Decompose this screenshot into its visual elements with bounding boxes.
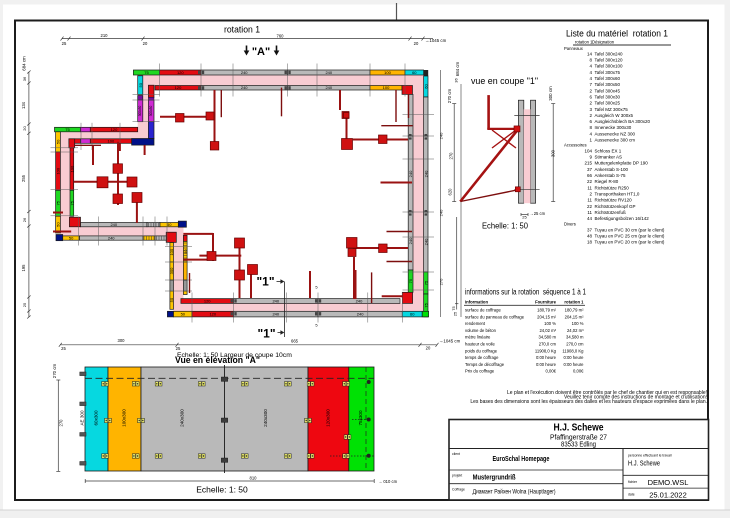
svg-text:270,0 cm: 270,0 cm — [566, 342, 584, 347]
svg-text:300 cm: 300 cm — [548, 86, 553, 101]
svg-text:300x30: 300x30 — [138, 106, 142, 117]
svg-text:180,79 m²: 180,79 m² — [537, 308, 556, 313]
svg-text:rotation 1: rotation 1 — [575, 40, 593, 45]
svg-text:50: 50 — [56, 222, 61, 227]
svg-text:270: 270 — [439, 278, 444, 285]
svg-text:34,580 m: 34,580 m — [566, 335, 584, 340]
svg-text:300: 300 — [551, 149, 556, 157]
svg-text:Mustergrundriß: Mustergrundriß — [473, 475, 517, 482]
svg-text:rotation 1: rotation 1 — [224, 25, 260, 35]
svg-text:25: 25 — [176, 346, 181, 351]
svg-text:36: 36 — [454, 78, 459, 83]
svg-text:Transporthaken HT1,0: Transporthaken HT1,0 — [595, 192, 640, 197]
svg-text:Prix du coffrage: Prix du coffrage — [465, 369, 495, 374]
svg-text:100: 100 — [383, 85, 390, 90]
svg-text:240x300: 240x300 — [263, 409, 268, 427]
svg-text:50: 50 — [138, 82, 143, 87]
svg-text:Liste du matériel rotation 1: Liste du matériel rotation 1 — [566, 29, 668, 39]
svg-text:37: 37 — [587, 227, 593, 232]
svg-text:120x300: 120x300 — [326, 409, 331, 427]
svg-text:informations sur la rotation: informations sur la rotation séquence 1 … — [465, 287, 586, 297]
svg-text:24,02 m³: 24,02 m³ — [567, 328, 584, 333]
svg-text:270 cm: 270 cm — [52, 363, 57, 378]
svg-text:Tafel 300x30: Tafel 300x30 — [595, 95, 621, 100]
svg-text:Tafel 300x60: Tafel 300x60 — [595, 76, 621, 81]
svg-text:25: 25 — [453, 311, 458, 316]
svg-text:180,79 m²: 180,79 m² — [565, 308, 584, 313]
svg-text:240: 240 — [241, 70, 248, 75]
svg-text:0,00€: 0,00€ — [546, 369, 557, 374]
svg-text:11: 11 — [587, 210, 592, 215]
svg-text:0:00 heure: 0:00 heure — [536, 355, 557, 360]
svg-text:240: 240 — [423, 238, 428, 245]
svg-text:25: 25 — [61, 346, 66, 351]
svg-text:25.01.2022: 25.01.2022 — [649, 491, 687, 500]
svg-text:→ 010 cm: → 010 cm — [378, 479, 398, 484]
svg-text:75: 75 — [69, 200, 74, 205]
svg-text:120: 120 — [209, 312, 216, 317]
svg-text:240: 240 — [408, 237, 413, 244]
svg-text:240: 240 — [241, 85, 248, 90]
svg-text:Tafel 300x45: Tafel 300x45 — [595, 88, 621, 93]
svg-text:240: 240 — [408, 170, 413, 177]
svg-text:0:00 heure: 0:00 heure — [563, 355, 584, 360]
svg-text:11: 11 — [587, 185, 592, 190]
svg-text:620: 620 — [447, 188, 452, 196]
svg-text:22: 22 — [587, 204, 593, 209]
svg-text:18: 18 — [587, 240, 593, 245]
svg-text:20: 20 — [426, 346, 431, 351]
svg-text:100: 100 — [169, 248, 174, 255]
svg-text:date: date — [628, 493, 635, 497]
svg-text:information: information — [465, 300, 488, 305]
svg-text:25: 25 — [22, 302, 27, 307]
svg-text:44: 44 — [587, 216, 593, 221]
svg-text:120: 120 — [177, 70, 184, 75]
svg-text:0:00 heure: 0:00 heure — [563, 362, 584, 367]
svg-text:Tafel 300x120: Tafel 300x120 — [595, 58, 624, 63]
svg-text:Riegel R-80: Riegel R-80 — [595, 179, 619, 184]
svg-text:240: 240 — [439, 132, 444, 139]
svg-text:Temps de décoffrage: Temps de décoffrage — [465, 362, 505, 367]
svg-text:270: 270 — [59, 419, 64, 427]
svg-text:H.J. Schewe: H.J. Schewe — [554, 423, 604, 434]
svg-text:Ankerstab S-100: Ankerstab S-100 — [595, 167, 629, 172]
svg-text:Tuyau en PVC 20 cm (par le cli: Tuyau en PVC 20 cm (par le client) — [595, 240, 665, 245]
svg-text:25: 25 — [522, 215, 527, 220]
svg-text:66: 66 — [587, 173, 593, 178]
svg-text:Richtstütze R250: Richtstütze R250 — [595, 185, 630, 190]
svg-text:60x300: 60x300 — [94, 410, 99, 426]
svg-text:270,0 cm: 270,0 cm — [539, 342, 557, 347]
svg-text:810: 810 — [250, 476, 258, 481]
svg-text:204,15 m²: 204,15 m² — [565, 314, 584, 319]
svg-text:120: 120 — [111, 127, 118, 132]
svg-text:11908,0 Kg: 11908,0 Kg — [535, 348, 557, 353]
svg-text:"A": "A" — [252, 46, 270, 58]
svg-text:120: 120 — [204, 299, 211, 304]
svg-text:Echelle: 1: 50: Echelle: 1: 50 — [482, 222, 529, 231]
svg-text:Panneaux: Panneaux — [564, 46, 584, 51]
svg-text:poids du coffrage: poids du coffrage — [465, 348, 498, 353]
svg-text:50: 50 — [181, 312, 186, 317]
svg-text:vue en coupe "1": vue en coupe "1" — [471, 76, 538, 86]
svg-text:Richtstütze RV120: Richtstütze RV120 — [595, 198, 633, 203]
svg-text:48: 48 — [587, 234, 593, 239]
svg-text:Pfaffingerstraße 27: Pfaffingerstraße 27 — [550, 435, 607, 442]
svg-text:Ausgleichsblech BA 300x20: Ausgleichsblech BA 300x20 — [595, 119, 651, 124]
svg-text:240: 240 — [325, 70, 332, 75]
svg-text:Stirnanker AS: Stirnanker AS — [595, 155, 623, 160]
svg-text:→1045 cm: →1045 cm — [425, 38, 447, 43]
svg-text:75: 75 — [423, 280, 428, 285]
svg-text:Schloss EX 1: Schloss EX 1 — [595, 148, 622, 153]
svg-text:Divers: Divers — [564, 221, 576, 226]
svg-text:Muttergelenkplatte DP 190: Muttergelenkplatte DP 190 — [595, 161, 649, 166]
svg-text:270 cm: 270 cm — [447, 88, 452, 103]
svg-text:Richtstützenkopf GP: Richtstützenkopf GP — [595, 204, 636, 209]
svg-text:20: 20 — [414, 41, 419, 46]
svg-text:11: 11 — [587, 198, 592, 203]
svg-text:60: 60 — [423, 84, 428, 89]
svg-text:AE 300: AE 300 — [80, 410, 85, 426]
svg-text:760: 760 — [277, 33, 285, 38]
svg-text:75: 75 — [144, 70, 149, 75]
svg-text:195: 195 — [21, 264, 26, 272]
svg-text:240: 240 — [108, 236, 115, 241]
svg-text:83533 Edling: 83533 Edling — [561, 442, 596, 449]
svg-text:temps de coffrage: temps de coffrage — [465, 355, 499, 360]
svg-text:684 cm: 684 cm — [455, 61, 460, 76]
svg-text:50: 50 — [56, 139, 61, 144]
svg-text:215: 215 — [584, 161, 592, 166]
svg-text:fichier: fichier — [628, 480, 638, 484]
svg-text:240: 240 — [356, 299, 363, 304]
svg-text:hauteur de voile: hauteur de voile — [465, 342, 495, 347]
svg-text:240: 240 — [325, 85, 332, 90]
svg-text:75: 75 — [56, 200, 61, 205]
svg-text:Accessoires: Accessoires — [564, 143, 587, 148]
svg-text:Диамант Райхен Wolna (Hauptlag: Диамант Райхен Wolna (Hauptlager) — [473, 488, 556, 496]
svg-text:75: 75 — [408, 278, 413, 283]
svg-text:240: 240 — [423, 170, 428, 177]
svg-text:mètre linéaire: mètre linéaire — [465, 335, 491, 340]
svg-text:100: 100 — [108, 139, 115, 144]
svg-text:Ankerstab S-75: Ankerstab S-75 — [595, 173, 627, 178]
svg-text:37: 37 — [587, 167, 593, 172]
svg-text:"1": "1" — [257, 327, 275, 341]
svg-text:Tafel MZ 300x75: Tafel MZ 300x75 — [595, 107, 629, 112]
svg-text:100 %: 100 % — [572, 321, 584, 326]
svg-text:100: 100 — [56, 167, 61, 174]
svg-text:240x300: 240x300 — [180, 409, 185, 427]
svg-text:11908,0 Kg: 11908,0 Kg — [562, 348, 584, 353]
svg-text:personne effectuant le travail: personne effectuant le travail — [628, 454, 672, 458]
svg-text:50: 50 — [167, 222, 172, 227]
svg-text:Aussenecke NZ 300: Aussenecke NZ 300 — [595, 131, 636, 136]
svg-text:Tafel 300x100: Tafel 300x100 — [595, 64, 624, 69]
svg-text:0,00€: 0,00€ — [573, 369, 584, 374]
svg-text:75: 75 — [65, 127, 70, 132]
svg-text:Ausgleich W 300x5: Ausgleich W 300x5 — [595, 113, 634, 118]
svg-text:→1045 cm: →1045 cm — [439, 339, 461, 344]
svg-text:240: 240 — [110, 222, 117, 227]
svg-text:34,580 m: 34,580 m — [539, 335, 557, 340]
svg-text:25: 25 — [62, 41, 67, 46]
svg-text:volume de béton: volume de béton — [465, 328, 497, 333]
svg-text:Befestigungsbolzen 16/142: Befestigungsbolzen 16/142 — [595, 216, 650, 221]
svg-text:Désignation: Désignation — [592, 40, 615, 45]
svg-text:22: 22 — [587, 179, 593, 184]
svg-text:665: 665 — [291, 339, 299, 344]
svg-text:26: 26 — [22, 217, 27, 222]
svg-text:Richtstützenfuß: Richtstützenfuß — [595, 210, 627, 215]
svg-text:50: 50 — [69, 236, 74, 241]
svg-text:240: 240 — [357, 312, 364, 317]
svg-text:240: 240 — [439, 209, 444, 216]
svg-text:270: 270 — [448, 152, 453, 160]
svg-text:→25 cm: →25 cm — [530, 211, 546, 216]
svg-text:Tafel 300x25: Tafel 300x25 — [595, 101, 621, 106]
svg-text:DEMO.WSL: DEMO.WSL — [648, 478, 689, 487]
svg-text:75: 75 — [423, 302, 428, 307]
svg-text:75: 75 — [451, 306, 456, 311]
svg-text:75x300: 75x300 — [358, 410, 363, 426]
svg-text:60: 60 — [412, 70, 417, 75]
svg-text:36: 36 — [22, 76, 27, 81]
svg-text:300: 300 — [118, 338, 126, 343]
svg-text:0:00 heure: 0:00 heure — [536, 362, 557, 367]
svg-text:20: 20 — [143, 41, 148, 46]
svg-text:120: 120 — [175, 85, 182, 90]
svg-text:H.J. Schewe: H.J. Schewe — [628, 461, 660, 468]
svg-text:100: 100 — [384, 70, 391, 75]
svg-text:Tafel 300x240: Tafel 300x240 — [595, 51, 624, 56]
svg-text:100: 100 — [69, 165, 74, 172]
svg-text:Les bases des dimensions sont: Les bases des dimensions sont les épaiss… — [470, 399, 707, 405]
svg-text:100 %: 100 % — [544, 321, 556, 326]
svg-text:240: 240 — [272, 299, 279, 304]
svg-text:EuroSchal Homepage: EuroSchal Homepage — [493, 456, 550, 463]
svg-text:Vue en élévation "A": Vue en élévation "A" — [175, 355, 260, 365]
svg-text:684 cm: 684 cm — [22, 56, 27, 71]
svg-text:Tafel 300x75: Tafel 300x75 — [595, 70, 621, 75]
svg-text:24,02 m³: 24,02 m³ — [539, 328, 556, 333]
svg-text:Aussenecke 300 cm: Aussenecke 300 cm — [595, 138, 636, 143]
svg-text:204,15 m²: 204,15 m² — [537, 314, 556, 319]
svg-text:Tuyau en PVC 30 cm (par le cli: Tuyau en PVC 30 cm (par le client) — [595, 227, 665, 232]
svg-text:20: 20 — [22, 126, 27, 131]
svg-text:100x300: 100x300 — [122, 409, 127, 427]
svg-text:104: 104 — [584, 148, 592, 153]
svg-text:210: 210 — [101, 33, 109, 38]
svg-text:Tuyau en PVC 25 cm (par le cli: Tuyau en PVC 25 cm (par le client) — [595, 234, 665, 239]
svg-text:Innenecke 300x30: Innenecke 300x30 — [595, 125, 632, 130]
svg-text:60: 60 — [410, 312, 415, 317]
svg-text:rotation 1: rotation 1 — [564, 300, 584, 305]
svg-text:Echelle: 1: 50: Echelle: 1: 50 — [196, 485, 248, 495]
svg-text:client: client — [452, 452, 460, 456]
svg-text:Fourniture: Fourniture — [535, 300, 557, 305]
svg-text:projekt: projekt — [452, 474, 462, 478]
svg-text:surface du panneau de coffrage: surface du panneau de coffrage — [465, 314, 525, 319]
svg-text:300x30: 300x30 — [149, 106, 153, 117]
svg-text:255: 255 — [21, 174, 26, 182]
svg-text:240: 240 — [272, 312, 279, 317]
svg-text:"1": "1" — [256, 275, 274, 289]
svg-text:surface de coffrage: surface de coffrage — [465, 308, 501, 313]
svg-text:134: 134 — [21, 101, 26, 109]
svg-text:Tafel 300x50: Tafel 300x50 — [595, 82, 621, 87]
svg-text:Coffrage: Coffrage — [452, 488, 465, 492]
svg-text:300: 300 — [169, 267, 174, 274]
svg-text:rendement: rendement — [465, 321, 486, 326]
svg-text:50: 50 — [169, 297, 174, 302]
svg-text:14: 14 — [587, 51, 593, 56]
